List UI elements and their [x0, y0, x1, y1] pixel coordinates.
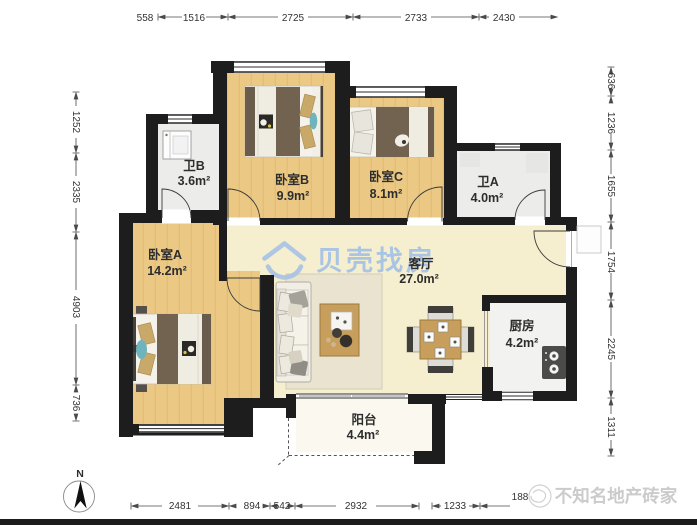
svg-text:2335: 2335 — [70, 181, 81, 204]
svg-text:1516: 1516 — [183, 13, 206, 24]
svg-text:2725: 2725 — [282, 13, 305, 24]
svg-text:3.6m²: 3.6m² — [178, 174, 211, 188]
svg-text:2733: 2733 — [405, 13, 428, 24]
svg-text:894: 894 — [244, 501, 261, 512]
svg-text:14.2m²: 14.2m² — [147, 264, 187, 278]
svg-text:卫A: 卫A — [477, 175, 499, 189]
svg-text:1655: 1655 — [605, 175, 616, 198]
svg-text:4903: 4903 — [70, 296, 81, 319]
svg-text:1754: 1754 — [605, 251, 616, 274]
svg-text:不知名地产砖家: 不知名地产砖家 — [555, 486, 678, 506]
svg-text:1252: 1252 — [70, 111, 81, 134]
svg-text:厨房: 厨房 — [509, 318, 534, 333]
svg-text:1236: 1236 — [605, 112, 616, 135]
svg-text:客厅: 客厅 — [407, 256, 434, 271]
svg-text:188: 188 — [512, 492, 529, 503]
svg-text:4.2m²: 4.2m² — [506, 336, 539, 350]
svg-text:2430: 2430 — [493, 13, 516, 24]
svg-text:1233: 1233 — [444, 501, 467, 512]
svg-text:4.0m²: 4.0m² — [471, 191, 504, 205]
svg-text:2481: 2481 — [169, 501, 192, 512]
svg-text:558: 558 — [137, 13, 154, 24]
svg-text:卧室C: 卧室C — [369, 169, 403, 184]
svg-text:542: 542 — [274, 501, 291, 512]
svg-text:卧室B: 卧室B — [275, 172, 309, 187]
svg-text:8.1m²: 8.1m² — [370, 187, 403, 201]
svg-text:阳台: 阳台 — [351, 412, 376, 427]
svg-text:27.0m²: 27.0m² — [399, 272, 439, 286]
svg-text:2932: 2932 — [345, 501, 368, 512]
svg-text:636: 636 — [605, 73, 616, 90]
svg-text:卧室A: 卧室A — [148, 247, 182, 262]
svg-text:2245: 2245 — [605, 338, 616, 361]
svg-text:卫B: 卫B — [183, 159, 205, 173]
svg-text:4.4m²: 4.4m² — [347, 428, 380, 442]
svg-text:736: 736 — [70, 395, 81, 412]
svg-text:9.9m²: 9.9m² — [277, 189, 310, 203]
svg-text:N: N — [76, 468, 84, 480]
svg-text:1311: 1311 — [605, 416, 616, 438]
